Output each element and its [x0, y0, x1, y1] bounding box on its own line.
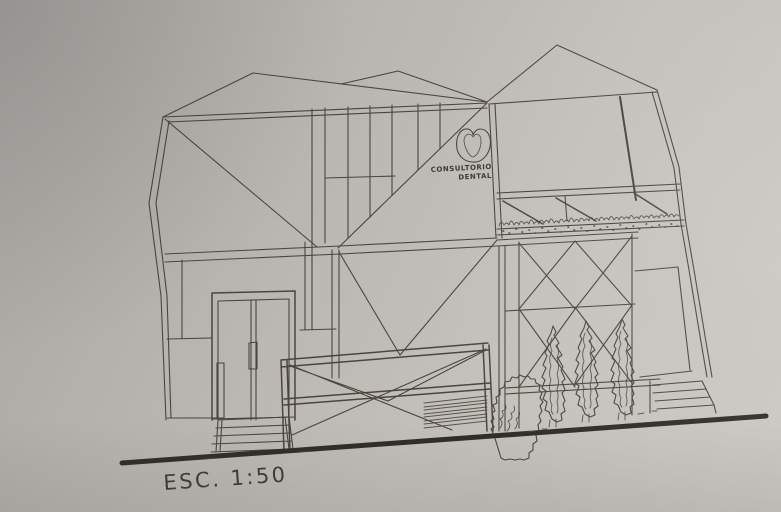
elevation-drawing: CONSULTORIO DENTAL	[0, 0, 781, 512]
logo-text-line2: DENTAL	[458, 172, 492, 182]
upper-right-wall	[620, 90, 694, 270]
trellis-lattice	[499, 234, 660, 431]
driveway-hatching	[424, 396, 487, 428]
upper-left-wall	[149, 117, 497, 420]
balcony-planter	[497, 184, 684, 246]
side-wall-return	[635, 267, 716, 413]
entrance-steps	[211, 417, 293, 452]
scale-annotation: ESC. 1:50	[163, 462, 289, 495]
side-steps	[650, 381, 716, 413]
photographed-paper-sheet: CONSULTORIO DENTAL	[0, 0, 781, 512]
planter-soil-dots	[503, 224, 678, 233]
roof-facets	[163, 45, 657, 122]
tooth-inner-loop	[464, 134, 481, 157]
ground-line	[122, 416, 766, 463]
cypress-tree-2	[575, 321, 598, 422]
driveway-gate	[281, 343, 493, 452]
cypress-tree-1	[542, 326, 565, 427]
